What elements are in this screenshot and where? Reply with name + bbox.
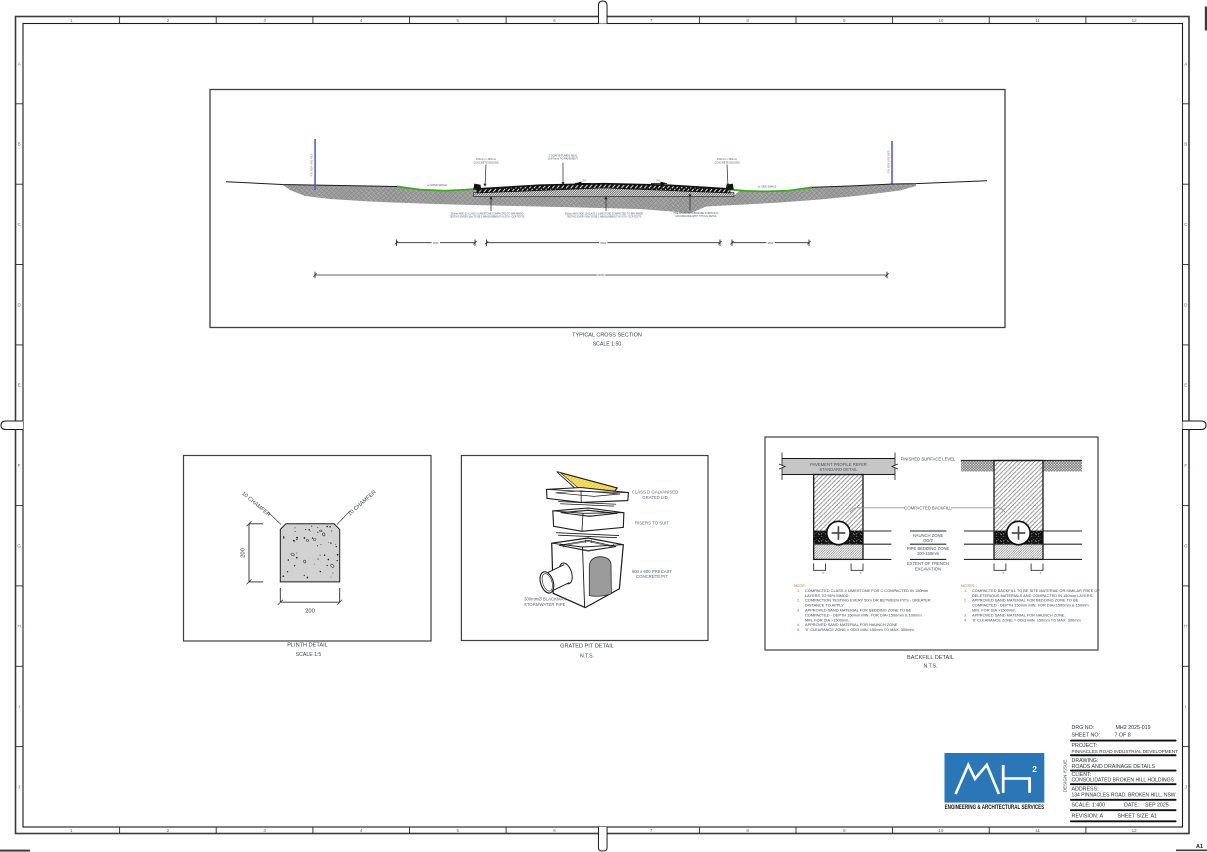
svg-text:7: 7 xyxy=(650,18,653,23)
svg-text:7: 7 xyxy=(650,828,653,833)
svg-text:ACCORDANCE WITH TYPICAL DETAIL: ACCORDANCE WITH TYPICAL DETAIL xyxy=(675,215,717,218)
svg-text:9: 9 xyxy=(843,828,846,833)
svg-text:20000: 20000 xyxy=(597,273,605,277)
svg-text:GRATED LID: GRATED LID xyxy=(642,495,667,500)
svg-text:PRE-SHAPE TO SUBGRADE SURFACE: PRE-SHAPE TO SUBGRADE SURFACE IN xyxy=(674,212,719,215)
svg-text:F: F xyxy=(18,463,21,468)
svg-text:5.: 5. xyxy=(797,627,800,632)
svg-text:PLINTH DETAIL: PLINTH DETAIL xyxy=(287,643,328,649)
svg-text:ex GRND SWALE: ex GRND SWALE xyxy=(427,184,447,187)
svg-text:3500: 3500 xyxy=(433,241,439,245)
svg-text:3500: 3500 xyxy=(768,241,774,245)
svg-text:P.R. BDY | RD RES: P.R. BDY | RD RES xyxy=(310,153,314,176)
svg-text:CONCRETE EDGING: CONCRETE EDGING xyxy=(714,160,740,164)
svg-text:N.T.S.: N.T.S. xyxy=(923,664,937,670)
svg-text:A1: A1 xyxy=(1151,813,1158,819)
svg-text:TESTING EVERY 50m TO BE 1 MEAS: TESTING EVERY 50m TO BE 1 MEASUREMENT IN… xyxy=(450,216,525,219)
svg-text:1.: 1. xyxy=(964,588,967,593)
svg-text:CONSOLIDATED BROKEN HILL HOLDI: CONSOLIDATED BROKEN HILL HOLDINGS xyxy=(1072,777,1175,783)
svg-text:ex SIDE SWALE: ex SIDE SWALE xyxy=(758,186,777,189)
svg-text:COMPACTED BACKFILL: COMPACTED BACKFILL xyxy=(904,505,952,510)
svg-text:300mm MIN. MOD.20 CLASS 3 LIME: 300mm MIN. MOD.20 CLASS 3 LIMESTONE COMP… xyxy=(565,213,644,216)
svg-text:PROJECT:: PROJECT: xyxy=(1072,743,1098,749)
svg-text:150mm MOD.20 CLASS 3 LIMESTONE: 150mm MOD.20 CLASS 3 LIMESTONE COMPACTED… xyxy=(451,213,524,216)
svg-text:ENGINEERING & ARCHITECTURAL SE: ENGINEERING & ARCHITECTURAL SERVICES xyxy=(945,805,1045,811)
svg-text:10: 10 xyxy=(938,828,944,833)
svg-text:ROADS AND DRAINAGE DETAILS: ROADS AND DRAINAGE DETAILS xyxy=(1072,764,1156,770)
svg-text:8: 8 xyxy=(746,828,749,833)
svg-text:'X' CLEARANCE ZONE = OD/3 MIN.: 'X' CLEARANCE ZONE = OD/3 MIN. 150mm TO … xyxy=(805,627,914,632)
svg-text:'X' CLEARANCE ZONE = OD/3 MIN.: 'X' CLEARANCE ZONE = OD/3 MIN. 150mm TO … xyxy=(972,617,1081,622)
svg-text:5: 5 xyxy=(457,828,460,833)
svg-text:SCALE 1:5: SCALE 1:5 xyxy=(296,652,322,658)
svg-text:10: 10 xyxy=(938,18,944,23)
svg-text:H: H xyxy=(18,624,21,629)
svg-text:8: 8 xyxy=(746,18,749,23)
svg-text:3: 3 xyxy=(263,18,266,23)
svg-text:E: E xyxy=(1184,383,1187,388)
svg-text:CONCRETE EDGING: CONCRETE EDGING xyxy=(473,160,499,164)
svg-text:100-150mm: 100-150mm xyxy=(917,551,940,556)
svg-text:11: 11 xyxy=(1035,18,1040,23)
svg-text:OD/2: OD/2 xyxy=(923,538,933,543)
svg-text:REVISION: A: REVISION: A xyxy=(1072,813,1104,819)
svg-text:3.: 3. xyxy=(797,608,800,613)
svg-text:DRG NO:: DRG NO: xyxy=(1072,725,1095,731)
svg-text:12: 12 xyxy=(1132,18,1138,23)
svg-text:SCALE 1:50: SCALE 1:50 xyxy=(593,341,622,347)
svg-text:134 PINNACLES ROAD, BROKEN HIL: 134 PINNACLES ROAD, BROKEN HILL, NSW xyxy=(1072,793,1176,799)
svg-text:SHEET SIZE:: SHEET SIZE: xyxy=(1118,813,1150,819)
svg-text:7 OF 8: 7 OF 8 xyxy=(1115,733,1131,739)
svg-text:9: 9 xyxy=(843,18,846,23)
svg-text:J: J xyxy=(18,784,20,789)
svg-text:2.: 2. xyxy=(797,598,800,603)
svg-text:E: E xyxy=(18,383,21,388)
svg-text:200: 200 xyxy=(241,548,247,558)
svg-text:HAUNCH ZONE: HAUNCH ZONE xyxy=(913,533,944,538)
svg-text:4: 4 xyxy=(360,828,363,833)
svg-text:TESTING EVERY 50m TO BE 1 MEAS: TESTING EVERY 50m TO BE 1 MEASUREMENT IN… xyxy=(567,216,642,219)
svg-text:SEP 2025: SEP 2025 xyxy=(1145,803,1169,809)
svg-text:BACKFILL DETAIL: BACKFILL DETAIL xyxy=(907,655,954,661)
svg-text:P.R. BDY | RD RES: P.R. BDY | RD RES xyxy=(886,150,890,173)
svg-text:12: 12 xyxy=(1132,828,1138,833)
svg-text:4.: 4. xyxy=(964,617,967,622)
svg-text:200: 200 xyxy=(305,609,315,615)
svg-text:B: B xyxy=(18,142,21,147)
svg-text:I: I xyxy=(19,704,20,709)
svg-text:B: B xyxy=(1184,142,1187,147)
svg-text:G: G xyxy=(1184,543,1188,548)
svg-text:PAVEMENT PROFILE REFER: PAVEMENT PROFILE REFER xyxy=(810,462,867,467)
svg-text:PINNACLES ROAD INDUSTRIAL DEVE: PINNACLES ROAD INDUSTRIAL DEVELOPMENT xyxy=(1072,749,1179,755)
svg-text:TYPICAL CROSS SECTION: TYPICAL CROSS SECTION xyxy=(572,332,642,338)
svg-text:2: 2 xyxy=(1032,764,1037,774)
svg-text:A1: A1 xyxy=(1196,844,1203,850)
svg-text:EXCAVATION: EXCAVATION xyxy=(915,567,941,572)
svg-text:4: 4 xyxy=(360,18,363,23)
svg-text:I: I xyxy=(1185,704,1186,709)
svg-text:2: 2 xyxy=(167,18,170,23)
svg-text:PIPE BEDDING ZONE: PIPE BEDDING ZONE xyxy=(907,546,950,551)
svg-text:2.: 2. xyxy=(964,598,967,603)
svg-text:1.: 1. xyxy=(797,588,800,593)
svg-text:EXTENT OF TRENCH: EXTENT OF TRENCH xyxy=(907,561,949,566)
svg-text:RISERS TO SUIT: RISERS TO SUIT xyxy=(635,520,669,525)
svg-text:FINISHED SURFACE LEVEL: FINISHED SURFACE LEVEL xyxy=(901,456,956,461)
svg-text:(14/7mm) TO PAVEMENT: (14/7mm) TO PAVEMENT xyxy=(548,157,578,161)
svg-text:STANDARD DETAIL: STANDARD DETAIL xyxy=(819,467,858,472)
svg-text:STORMWATER PIPE: STORMWATER PIPE xyxy=(524,602,566,607)
svg-text:11: 11 xyxy=(1035,828,1040,833)
svg-text:6: 6 xyxy=(553,828,556,833)
svg-text:1: 1 xyxy=(70,828,73,833)
svg-text:J: J xyxy=(1185,784,1187,789)
svg-text:3: 3 xyxy=(263,828,266,833)
svg-text:G: G xyxy=(17,543,21,548)
svg-text:N.T.S.: N.T.S. xyxy=(580,653,594,659)
svg-text:6: 6 xyxy=(553,18,556,23)
svg-text:1: 1 xyxy=(70,18,73,23)
svg-text:SHEET NO:: SHEET NO: xyxy=(1072,733,1100,739)
svg-text:8000: 8000 xyxy=(600,241,606,245)
svg-text:F: F xyxy=(1184,463,1187,468)
svg-text:GRATED PIT DETAIL: GRATED PIT DETAIL xyxy=(560,644,614,650)
svg-text:DESIGN ISSUE: DESIGN ISSUE xyxy=(1063,760,1068,793)
svg-text:SCALE: 1:400: SCALE: 1:400 xyxy=(1072,803,1106,809)
svg-text:DATE:: DATE: xyxy=(1124,803,1139,809)
svg-text:2: 2 xyxy=(167,828,170,833)
svg-text:CONCRETE PIT: CONCRETE PIT xyxy=(636,574,668,579)
svg-text:MH2 2025-019: MH2 2025-019 xyxy=(1116,725,1151,731)
svg-text:H: H xyxy=(1184,624,1187,629)
svg-text:5: 5 xyxy=(457,18,460,23)
